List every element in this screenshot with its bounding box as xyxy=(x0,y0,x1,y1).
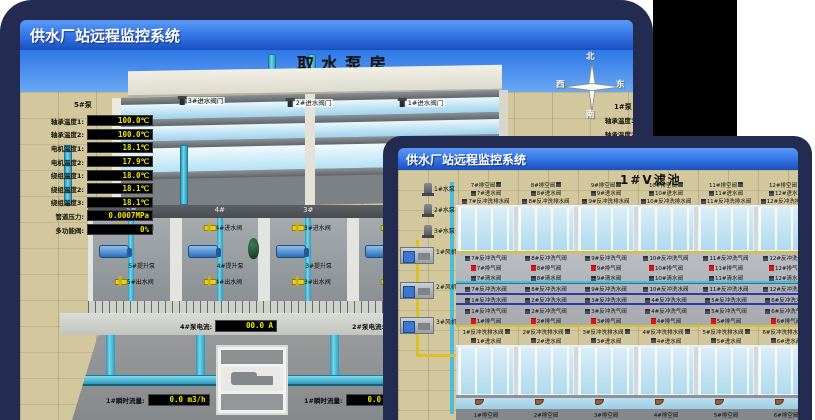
washout-valve-icon[interactable] xyxy=(701,199,706,204)
inlet-valve-icon[interactable] xyxy=(531,191,536,196)
sensor-row: 轴承温度2: 100.0℃ xyxy=(26,128,158,142)
blower: 2#风机 xyxy=(400,282,462,317)
washout-valve-icon[interactable] xyxy=(522,199,527,204)
clean-valve-icon[interactable] xyxy=(709,276,714,281)
blower-icon[interactable] xyxy=(400,247,434,264)
drain-valve-group: 2#排空阀 xyxy=(516,395,576,420)
v-filter-scene: 1#V滤池 1#水泵 2#水泵 xyxy=(398,170,798,420)
sensor-row: 管道压力: 0.0007MPa xyxy=(26,209,158,223)
vent-valve-label: 10#排气阀 xyxy=(655,264,683,272)
vent-valve-group: 9#排气阀 xyxy=(576,263,636,273)
washout-valve-label: 9#反冲洗排水阀 xyxy=(588,197,629,205)
inlet-valve-group: 3#进水阀 xyxy=(292,222,331,232)
inlet-valve-icon[interactable] xyxy=(471,338,476,343)
airwash-valve-icon[interactable] xyxy=(765,309,770,314)
vent-valve-label: 6#排气阀 xyxy=(777,317,798,325)
drain-valve-icon[interactable] xyxy=(556,182,561,187)
filter-cell-pool xyxy=(518,207,574,251)
drain-elbow-icon[interactable] xyxy=(475,399,484,405)
gate-label: 1#进水阀门 xyxy=(407,99,445,107)
airwash-valve-icon[interactable] xyxy=(525,256,530,261)
drain-valve-group: 4#排空阀 xyxy=(636,395,696,420)
drain-elbow-icon[interactable] xyxy=(775,399,784,405)
bottom-vent-valve-row: 1#排气阀 2#排气阀 3#排气阀 xyxy=(456,316,798,326)
readout-label: 1#瞬时流量: xyxy=(304,395,343,405)
sensor-value: 18.1℃ xyxy=(87,183,153,194)
wash-valve-label: 5#反冲洗水阀 xyxy=(711,296,747,304)
front-window-titlebar: 供水厂站远程监控系统 xyxy=(398,148,798,170)
inlet-valve-group: 11#进水阀 xyxy=(696,189,756,197)
airwash-valve-icon[interactable] xyxy=(585,309,590,314)
inlet-valve-icon[interactable] xyxy=(471,191,476,196)
inlet-valve-icon[interactable] xyxy=(709,191,714,196)
clean-valve-label: 12#清水阀 xyxy=(775,274,798,282)
sensor-value: 0% xyxy=(87,224,153,235)
outlet-valve-icon[interactable] xyxy=(203,276,214,286)
washout-valve-group: 4#反冲洗排水阀 xyxy=(636,327,696,336)
flow-meter-device xyxy=(216,345,288,415)
pump5-sensor-panel: 5#泵 轴承温度1: 100.0℃ 轴承温度2: 100.0℃ xyxy=(26,100,158,236)
vent-valve-icon[interactable] xyxy=(531,318,536,324)
vent-valve-group: 8#排气阀 xyxy=(516,263,576,273)
drain-elbow-icon[interactable] xyxy=(715,399,724,405)
sensor-label: 电机温度2: xyxy=(26,157,84,167)
clean-valve-icon[interactable] xyxy=(649,276,654,281)
water-pump-label: 2#水泵 xyxy=(434,205,455,214)
inlet-valve-icon[interactable] xyxy=(771,338,776,343)
filter-cell-pool xyxy=(458,207,514,251)
blower-label: 3#风机 xyxy=(436,317,457,326)
vent-valve-group: 5#排气阀 xyxy=(696,316,756,326)
sensor-row: 电机温度1: 18.1℃ xyxy=(26,141,158,155)
inlet-gate-2[interactable]: 2#进水阀门 xyxy=(288,98,333,107)
vent-valve-icon[interactable] xyxy=(711,318,716,324)
filter-cell-pool xyxy=(518,347,574,395)
compass-east: 东 xyxy=(616,78,625,90)
gate-label: 3#进水阀门 xyxy=(187,97,225,105)
clean-valve-label: 10#清水阀 xyxy=(655,274,683,282)
airwash-valve-icon[interactable] xyxy=(465,309,470,314)
inlet-valve-label: 8#进水阀 xyxy=(537,189,562,197)
readout-label: 1#瞬时流量: xyxy=(106,395,145,405)
inlet-valve-label: 12#进水阀 xyxy=(775,189,798,197)
airwash-valve-icon[interactable] xyxy=(703,256,708,261)
top-drain-valve-row: 7#排空阀 8#排空阀 9#排空阀 10#排空阀 xyxy=(456,180,798,189)
readout-value: 0.0 m3/h xyxy=(148,394,210,406)
vent-valve-icon[interactable] xyxy=(649,265,654,271)
inlet-valve-group: 10#进水阀 xyxy=(636,189,696,197)
drain-valve-label: 3#排空阀 xyxy=(594,411,619,419)
wash-valve-label: 7#反冲洗水阀 xyxy=(471,285,507,293)
compass-west: 西 xyxy=(556,78,565,90)
vent-valve-group: 2#排气阀 xyxy=(516,316,576,326)
airwash-valve-group: 8#反冲洗气阀 xyxy=(516,253,576,263)
airwash-valve-group: 3#反冲洗气阀 xyxy=(576,306,636,316)
vent-valve-icon[interactable] xyxy=(651,318,656,324)
filter-cell-pool xyxy=(578,207,634,251)
filter-cell-pool xyxy=(638,207,694,251)
clean-valve-group: 10#清水阀 xyxy=(636,273,696,283)
gate-valve-icon[interactable] xyxy=(400,98,405,107)
inlet-valve-icon[interactable] xyxy=(649,191,654,196)
drain-valve-group: 7#排空阀 xyxy=(456,180,516,189)
vent-valve-label: 1#排气阀 xyxy=(477,317,502,325)
washout-valve-label: 3#反冲洗排水阀 xyxy=(582,328,623,336)
drain-valve-group: 8#排空阀 xyxy=(516,180,576,189)
wash-valve-group: 3#反冲洗水阀 xyxy=(576,295,636,305)
wash-valve-label: 2#反冲洗水阀 xyxy=(531,296,567,304)
wash-valve-label: 6#反冲洗水阀 xyxy=(771,296,798,304)
wash-valve-group: 12#反冲洗水阀 xyxy=(756,284,798,294)
suction-pipe xyxy=(180,145,188,205)
vent-valve-icon[interactable] xyxy=(471,265,476,271)
clean-valve-group: 11#清水阀 xyxy=(696,273,756,283)
water-pump-icon[interactable] xyxy=(424,204,432,215)
inlet-valve-label: 5#进水阀 xyxy=(717,337,742,345)
inlet-valve-label: 4#进水阀 xyxy=(215,223,242,232)
pump-bay: 3# 3#进水阀 3#提升泵 3#出水阀 xyxy=(270,218,347,301)
washout-valve-icon[interactable] xyxy=(625,329,630,334)
outlet-valve-group: 3#出水阀 xyxy=(292,276,331,286)
water-pump-icon[interactable] xyxy=(424,225,432,236)
vent-valve-group: 12#排气阀 xyxy=(756,263,798,273)
drain-valve-icon[interactable] xyxy=(496,182,501,187)
filter-cell-pool xyxy=(698,347,754,395)
water-pump-icon[interactable] xyxy=(424,183,432,194)
water-pump-label: 1#水泵 xyxy=(434,184,455,193)
readout-label: 4#泵电流: xyxy=(180,321,212,331)
drain-valve-group: 5#排空阀 xyxy=(696,395,756,420)
washout-valve-label: 4#反冲洗排水阀 xyxy=(642,328,683,336)
vent-valve-label: 9#排气阀 xyxy=(597,264,622,272)
lift-pump-icon[interactable] xyxy=(276,245,306,258)
inlet-valve-icon[interactable] xyxy=(292,222,303,232)
equipment-column: 1#水泵 2#水泵 3#水泵 xyxy=(398,178,462,352)
lift-pump-icon[interactable] xyxy=(188,245,218,258)
vent-valve-label: 5#排气阀 xyxy=(717,317,742,325)
washout-valve-group: 10#反冲洗排水阀 xyxy=(636,197,696,205)
wash-valve-icon[interactable] xyxy=(585,298,590,303)
vent-valve-icon[interactable] xyxy=(471,318,476,324)
window-v-filter: 供水厂站远程监控系统 1#V滤池 1#水泵 2#水泵 xyxy=(383,136,812,420)
wash-valve-icon[interactable] xyxy=(525,287,530,292)
washout-valve-group: 7#反冲洗排水阀 xyxy=(456,197,516,205)
washout-valve-icon[interactable] xyxy=(745,329,750,334)
wash-valve-label: 8#反冲洗水阀 xyxy=(531,285,567,293)
clean-valve-icon[interactable] xyxy=(531,276,536,281)
drain-valve-group: 12#排空阀 xyxy=(756,180,798,189)
wash-valve-icon[interactable] xyxy=(645,298,650,303)
wash-valve-label: 12#反冲洗水阀 xyxy=(769,285,798,293)
washout-valve-label: 10#反冲洗排水阀 xyxy=(647,197,692,205)
wash-valve-label: 11#反冲洗水阀 xyxy=(709,285,748,293)
inlet-valve-icon[interactable] xyxy=(203,222,214,232)
airwash-valve-icon[interactable] xyxy=(525,309,530,314)
airwash-valve-label: 3#反冲洗气阀 xyxy=(591,307,627,315)
pump-bay: 4# 4#进水阀 4#提升泵 4#出水阀 xyxy=(182,218,259,301)
gate-valve-icon[interactable] xyxy=(288,98,293,107)
sensor-value: 0.0007MPa xyxy=(87,210,153,221)
vent-valve-group: 3#排气阀 xyxy=(576,316,636,326)
drain-valve-icon[interactable] xyxy=(738,182,743,187)
washout-valve-icon[interactable] xyxy=(582,199,587,204)
inlet-valve-icon[interactable] xyxy=(591,338,596,343)
washout-valve-label: 1#反冲洗排水阀 xyxy=(462,328,503,336)
wash-valve-label: 3#反冲洗水阀 xyxy=(591,296,627,304)
washout-valve-label: 11#反冲洗排水阀 xyxy=(707,197,752,205)
wash-valve-label: 10#反冲洗水阀 xyxy=(649,285,688,293)
inlet-valve-label: 6#进水阀 xyxy=(777,337,798,345)
vent-valve-group: 4#排气阀 xyxy=(636,316,696,326)
outlet-valve-icon[interactable] xyxy=(115,276,126,286)
wash-valve-label: 4#反冲洗水阀 xyxy=(651,296,687,304)
inlet-valve-label: 3#进水阀 xyxy=(597,337,622,345)
sensor-label: 管道压力: xyxy=(26,211,84,221)
airwash-valve-group: 4#反冲洗气阀 xyxy=(636,306,696,316)
airwash-valve-icon[interactable] xyxy=(585,256,590,261)
vent-valve-icon[interactable] xyxy=(709,265,714,271)
sensor-value: 100.0℃ xyxy=(87,115,153,126)
inlet-valve-label: 1#进水阀 xyxy=(477,337,502,345)
airwash-valve-label: 1#反冲洗气阀 xyxy=(471,307,507,315)
blower: 1#风机 xyxy=(400,247,462,282)
wash-valve-icon[interactable] xyxy=(525,298,530,303)
inlet-valve-label: 7#进水阀 xyxy=(477,189,502,197)
blowers: 1#风机 2#风机 3#风机 xyxy=(400,247,462,352)
clean-valve-label: 11#清水阀 xyxy=(715,274,743,282)
wash-valve-group: 2#反冲洗水阀 xyxy=(516,295,576,305)
wash-valve-group: 7#反冲洗水阀 xyxy=(456,284,516,294)
drain-valve-label: 1#排空阀 xyxy=(474,411,499,419)
wash-valve-icon[interactable] xyxy=(465,298,470,303)
inlet-valve-group: 6#进水阀 xyxy=(756,336,798,345)
back-window-title: 供水厂站远程监控系统 xyxy=(20,25,180,46)
inlet-valve-icon[interactable] xyxy=(769,191,774,196)
washout-valve-icon[interactable] xyxy=(505,329,510,334)
blower-icon[interactable] xyxy=(400,317,434,334)
filter-cell-pool xyxy=(758,207,798,251)
drain-elbow-icon[interactable] xyxy=(655,399,664,405)
water-pumps: 1#水泵 2#水泵 3#水泵 xyxy=(398,178,462,241)
washout-valve-label: 5#反冲洗排水阀 xyxy=(702,328,743,336)
wash-valve-group: 6#反冲洗水阀 xyxy=(756,295,798,305)
airwash-valve-icon[interactable] xyxy=(465,256,470,261)
sensor-label: 轴承温度1: xyxy=(580,115,633,129)
wash-valve-icon[interactable] xyxy=(585,287,590,292)
washout-valve-icon[interactable] xyxy=(462,199,467,204)
filter-cells-top xyxy=(456,205,798,251)
airwash-valve-group: 6#反冲洗气阀 xyxy=(756,306,798,316)
wash-valve-icon[interactable] xyxy=(765,298,770,303)
drain-valve-label: 10#排空阀 xyxy=(649,181,677,189)
vent-valve-icon[interactable] xyxy=(591,265,596,271)
inlet-valve-label: 9#进水阀 xyxy=(597,189,622,197)
vent-valve-label: 2#排气阀 xyxy=(537,317,562,325)
vent-valve-group: 11#排气阀 xyxy=(696,263,756,273)
branch-pipe xyxy=(330,335,339,376)
lift-pump-icon[interactable] xyxy=(99,245,129,258)
sensor-value: 18.1℃ xyxy=(87,142,153,153)
sensor-label: 绕组温度1: xyxy=(26,170,84,180)
top-clean-valve-row: 7#清水阀 8#清水阀 9#清水阀 xyxy=(456,273,798,283)
inlet-valve-icon[interactable] xyxy=(651,338,656,343)
device-panel xyxy=(221,350,283,364)
drain-valve-group: 3#排空阀 xyxy=(576,395,636,420)
top-inlet-valve-row: 7#进水阀 8#进水阀 9#进水阀 10#进水阀 xyxy=(456,189,798,197)
vent-valve-group: 10#排气阀 xyxy=(636,263,696,273)
inlet-valve-group: 9#进水阀 xyxy=(576,189,636,197)
sensor-value: 17.9℃ xyxy=(87,156,153,167)
wash-valve-icon[interactable] xyxy=(705,298,710,303)
drain-valve-label: 8#排空阀 xyxy=(531,181,556,189)
filter-cell-pool xyxy=(758,347,798,395)
drain-elbow-icon[interactable] xyxy=(535,399,544,405)
gate-valve-icon[interactable] xyxy=(180,96,185,105)
drain-valve-label: 11#排空阀 xyxy=(709,181,737,189)
device-panel xyxy=(221,394,283,410)
airwash-valve-group: 11#反冲洗气阀 xyxy=(696,253,756,263)
inlet-valve-icon[interactable] xyxy=(711,338,716,343)
washout-valve-label: 7#反冲洗排水阀 xyxy=(468,197,509,205)
top-airwash-valve-row: 7#反冲洗气阀 8#反冲洗气阀 9#反冲洗气阀 xyxy=(456,253,798,263)
inlet-valve-group: 3#进水阀 xyxy=(576,336,636,345)
sensor-value: 100.0℃ xyxy=(87,129,153,140)
top-wash-valve-row: 7#反冲洗水阀 8#反冲洗水阀 9#反冲洗水阀 xyxy=(456,284,798,294)
inlet-valve-group: 2#进水阀 xyxy=(516,336,576,345)
washout-valve-group: 8#反冲洗排水阀 xyxy=(516,197,576,205)
inlet-valve-group: 8#进水阀 xyxy=(516,189,576,197)
airwash-valve-group: 5#反冲洗气阀 xyxy=(696,306,756,316)
inlet-valve-label: 11#进水阀 xyxy=(715,189,743,197)
inlet-valve-icon[interactable] xyxy=(531,338,536,343)
sensor-value: 18.1℃ xyxy=(87,197,153,208)
inlet-valve-label: 4#进水阀 xyxy=(657,337,682,345)
inlet-valve-label: 3#进水阀 xyxy=(304,223,331,232)
inlet-valve-label: 2#进水阀 xyxy=(537,337,562,345)
inlet-valve-group: 7#进水阀 xyxy=(456,189,516,197)
gate-label: 2#进水阀门 xyxy=(295,99,333,107)
inlet-valve-group: 4#进水阀 xyxy=(203,222,242,232)
airwash-valve-label: 11#反冲洗气阀 xyxy=(709,254,748,262)
washout-valve-icon[interactable] xyxy=(761,199,766,204)
vent-valve-icon[interactable] xyxy=(769,265,774,271)
drain-valve-icon[interactable] xyxy=(616,182,621,187)
inlet-gate-3[interactable]: 3#进水阀门 xyxy=(180,96,225,105)
vent-valve-label: 11#排气阀 xyxy=(715,264,743,272)
wash-valve-label: 9#反冲洗水阀 xyxy=(591,285,627,293)
sensor-value: 18.0℃ xyxy=(87,170,153,181)
wash-valve-group: 11#反冲洗水阀 xyxy=(696,284,756,294)
wash-valve-icon[interactable] xyxy=(703,287,708,292)
vent-valve-label: 3#排气阀 xyxy=(597,317,622,325)
clean-valve-icon[interactable] xyxy=(591,276,596,281)
washout-valve-icon[interactable] xyxy=(641,199,646,204)
bay-number: 4# xyxy=(215,206,225,214)
drain-valve-label: 6#排空阀 xyxy=(774,411,798,419)
drain-valve-group: 11#排空阀 xyxy=(696,180,756,189)
bottom-wash-valve-row: 1#反冲洗水阀 2#反冲洗水阀 3#反冲洗水阀 xyxy=(456,295,798,305)
sensor-row: 电机温度2: 17.9℃ xyxy=(26,155,158,169)
washout-valve-group: 6#反冲洗排水阀 xyxy=(756,327,798,336)
vent-valve-label: 7#排气阀 xyxy=(477,264,502,272)
readout-label: 2#泵电流: xyxy=(352,321,384,331)
lift-pump-label: 5#提升泵 xyxy=(128,261,155,270)
airwash-valve-group: 7#反冲洗气阀 xyxy=(456,253,516,263)
washout-valve-label: 2#反冲洗排水阀 xyxy=(522,328,563,336)
vent-valve-group: 6#排气阀 xyxy=(756,316,798,326)
device-pump-graphic xyxy=(221,367,283,391)
sensor-row: 轴承温度1: 100.0℃ xyxy=(26,114,158,128)
branch-pipe xyxy=(106,335,115,376)
airwash-valve-group: 10#反冲洗气阀 xyxy=(636,253,696,263)
drain-valve-icon[interactable] xyxy=(678,182,683,187)
airwash-valve-icon[interactable] xyxy=(763,256,768,261)
airwash-valve-icon[interactable] xyxy=(643,256,648,261)
inlet-gate-1[interactable]: 1#进水阀门 xyxy=(400,98,445,107)
drain-valve-label: 12#排空阀 xyxy=(769,181,797,189)
outlet-valve-icon[interactable] xyxy=(292,276,303,286)
drain-elbow-icon[interactable] xyxy=(595,399,604,405)
inlet-valve-group: 5#进水阀 xyxy=(696,336,756,345)
back-window-titlebar: 供水厂站远程监控系统 xyxy=(20,20,633,50)
airwash-valve-label: 8#反冲洗气阀 xyxy=(531,254,567,262)
clean-valve-icon[interactable] xyxy=(471,276,476,281)
washout-valve-icon[interactable] xyxy=(565,329,570,334)
drain-valve-label: 2#排空阀 xyxy=(534,411,559,419)
airwash-valve-icon[interactable] xyxy=(645,309,650,314)
flow-readout-left: 1#瞬时流量: 0.0 m3/h xyxy=(106,394,210,406)
branch-pipe xyxy=(196,335,205,376)
washout-valve-group: 9#反冲洗排水阀 xyxy=(576,197,636,205)
wash-valve-label: 1#反冲洗水阀 xyxy=(471,296,507,304)
vent-valve-icon[interactable] xyxy=(771,318,776,324)
airwash-valve-group: 9#反冲洗气阀 xyxy=(576,253,636,263)
washout-valve-label: 6#反冲洗排水阀 xyxy=(762,328,798,336)
airwash-valve-label: 9#反冲洗气阀 xyxy=(591,254,627,262)
drain-valve-label: 9#排空阀 xyxy=(591,181,616,189)
outlet-valve-group: 5#出水阀 xyxy=(115,276,154,286)
vent-valve-group: 7#排气阀 xyxy=(456,263,516,273)
clean-valve-group: 7#清水阀 xyxy=(456,273,516,283)
sensor-label: 绕组温度2: xyxy=(26,184,84,194)
clean-valve-icon[interactable] xyxy=(769,276,774,281)
wash-valve-group: 4#反冲洗水阀 xyxy=(636,295,696,305)
inlet-valve-icon[interactable] xyxy=(591,191,596,196)
sensor-label: 轴承温度2: xyxy=(26,129,84,139)
clean-valve-group: 9#清水阀 xyxy=(576,273,636,283)
airwash-valve-group: 1#反冲洗气阀 xyxy=(456,306,516,316)
airwash-valve-label: 7#反冲洗气阀 xyxy=(471,254,507,262)
airwash-valve-icon[interactable] xyxy=(705,309,710,314)
blower-icon[interactable] xyxy=(400,282,434,299)
wash-valve-icon[interactable] xyxy=(465,287,470,292)
vent-valve-icon[interactable] xyxy=(531,265,536,271)
drain-channel: 1#排空阀 2#排空阀 3#排空阀 4#排空阀 xyxy=(456,395,798,420)
vent-valve-group: 1#排气阀 xyxy=(456,316,516,326)
airwash-valve-label: 2#反冲洗气阀 xyxy=(531,307,567,315)
vent-valve-icon[interactable] xyxy=(591,318,596,324)
inlet-valve-group: 12#进水阀 xyxy=(756,189,798,197)
filter-cell-pool xyxy=(578,347,634,395)
outlet-valve-label: 4#出水阀 xyxy=(215,277,242,286)
washout-valve-label: 12#反冲洗排水阀 xyxy=(767,197,798,205)
pressure-tank xyxy=(248,238,259,259)
clean-valve-label: 7#清水阀 xyxy=(477,274,502,282)
sensor-row: 绕组温度1: 18.0℃ xyxy=(26,168,158,182)
washout-valve-icon[interactable] xyxy=(685,329,690,334)
wash-valve-icon[interactable] xyxy=(643,287,648,292)
wash-valve-icon[interactable] xyxy=(763,287,768,292)
